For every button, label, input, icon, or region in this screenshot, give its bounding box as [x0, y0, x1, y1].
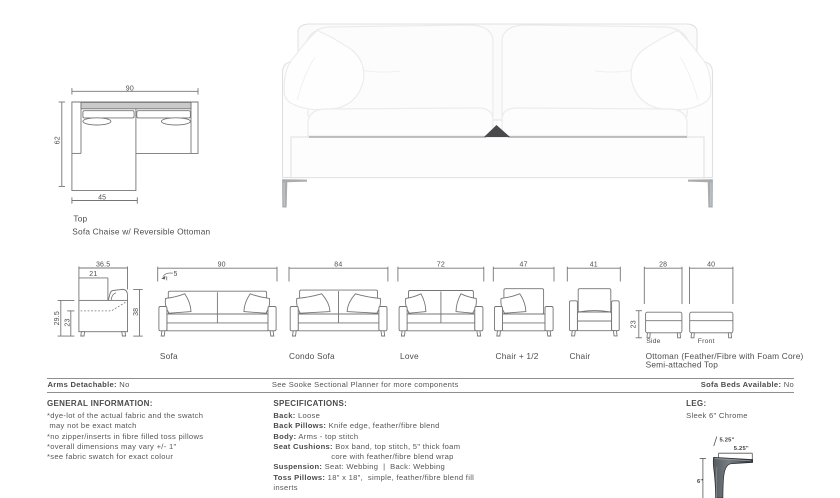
svg-text:23: 23 — [631, 320, 638, 328]
svg-text:5: 5 — [174, 271, 178, 278]
svg-text:23: 23 — [64, 318, 71, 326]
svg-text:72: 72 — [437, 262, 445, 269]
svg-text:90: 90 — [218, 262, 226, 269]
svg-text:Chair: Chair — [570, 351, 591, 361]
svg-text:Semi-attached Top: Semi-attached Top — [646, 360, 719, 370]
svg-text:47: 47 — [520, 262, 528, 269]
svg-text:41: 41 — [590, 262, 598, 269]
svg-text:6": 6" — [697, 479, 703, 485]
svg-text:Front: Front — [698, 338, 715, 345]
svg-text:62: 62 — [55, 136, 62, 144]
svg-text:Top: Top — [73, 214, 87, 224]
svg-text:45: 45 — [98, 194, 106, 201]
svg-text:Sofa: Sofa — [160, 351, 178, 361]
svg-text:40: 40 — [707, 262, 715, 269]
svg-text:Condo Sofa: Condo Sofa — [289, 351, 335, 361]
svg-text:36.5: 36.5 — [96, 261, 110, 268]
svg-text:84: 84 — [334, 262, 342, 269]
svg-text:21: 21 — [89, 271, 97, 278]
svg-text:Love: Love — [400, 351, 419, 361]
svg-text:Chair + 1/2: Chair + 1/2 — [496, 351, 539, 361]
svg-text:38: 38 — [133, 308, 140, 316]
svg-text:28: 28 — [659, 262, 667, 269]
svg-text:29.5: 29.5 — [54, 311, 61, 325]
svg-text:Side: Side — [646, 338, 660, 345]
svg-text:5.25": 5.25" — [720, 438, 735, 444]
svg-text:5.25": 5.25" — [734, 446, 749, 452]
svg-text:Sofa Chaise w/ Reversible Otto: Sofa Chaise w/ Reversible Ottoman — [72, 227, 210, 237]
svg-text:90: 90 — [126, 85, 134, 92]
